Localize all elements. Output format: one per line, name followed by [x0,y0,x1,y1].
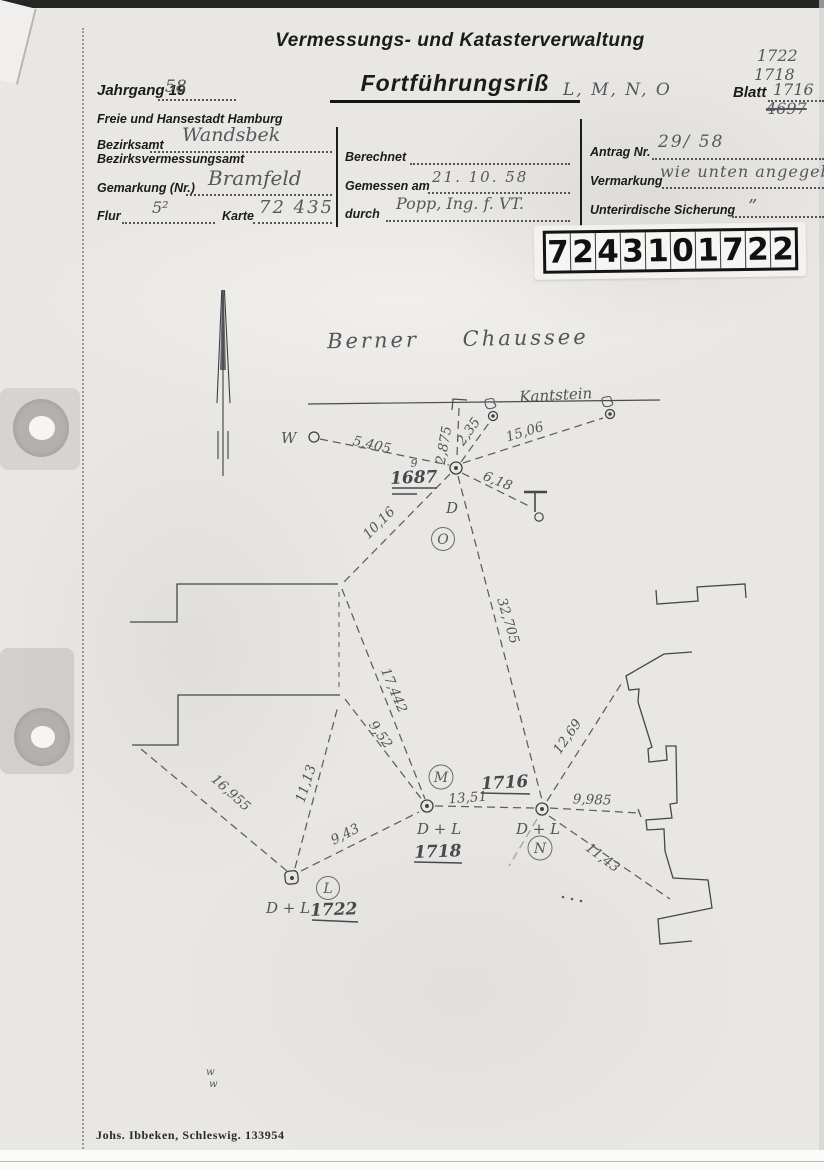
section-letter-m: M [433,770,449,786]
section-letter-n: N [533,841,547,857]
stamp-digit: 2 [746,231,772,268]
gemarkung-dotline [186,194,332,196]
measurement-label: 9,43 [328,820,362,848]
marker-code-l: D + L [265,899,310,917]
sicherung-label: Unterirdische Sicherung [590,203,735,217]
sicherung-value: ” [748,196,757,217]
blatt-crossed-value: 4697 [766,99,807,118]
jahrgang-value: 58 [165,77,187,97]
form-divider [580,119,582,229]
scanned-form-page: Vermessungs- und Katasterverwaltung Fort… [0,0,824,1169]
page-corner-fold [0,0,37,85]
pipe-symbol [524,492,547,521]
stamped-number: 7 2 4 3 1 0 1 7 2 2 [543,227,799,274]
measurement-label: 32,705 [493,596,522,646]
gemarkung-value: Bramfeld [208,166,302,190]
document-title: Fortführungsriß [330,70,580,103]
stamp-digit: 2 [771,230,796,267]
north-arrow-icon [217,290,230,476]
stamp-digit: 0 [671,232,697,269]
agency-title: Vermessungs- und Katasterverwaltung [160,30,760,52]
marker-code-m: D + L [416,820,461,838]
measurement-label: 9,985 [573,791,612,808]
stray-pencil-marks: w w [206,1067,218,1090]
antrag-value: 29/ 58 [658,132,724,152]
flur-value: 5² [152,198,169,217]
street-name: Berner Chaussee [326,325,589,354]
vermarkung-value: wie unten angegeben [660,162,824,181]
flur-dotline [122,222,215,224]
survey-sketch: O M N L Berner Chaussee Kantstein W D 16… [0,290,824,1169]
measurement-label: 9,52 [365,718,395,752]
title-sections-annotation: L, M, N, O [563,80,672,100]
measurement-label: 2,35 [453,415,484,450]
curb-label: Kantstein [518,384,593,406]
point-number-1716: 1716 [481,772,529,794]
point-number-1687: 1687 [390,467,438,489]
scan-bottom-line [0,1161,824,1162]
point-c [309,432,319,442]
measurement-label: 5,405 [351,433,392,457]
pencil-dots [562,896,583,903]
measurement-label: 15,06 [504,419,546,446]
durch-value: Popp, Ing. f. VT. [396,194,524,213]
stamp-digit: 4 [596,233,622,270]
point-letter-d: D [445,499,458,517]
antrag-dotline [652,158,824,160]
building-outlines [130,584,746,944]
point-number-1718: 1718 [414,841,462,863]
measurement-label: 11,43 [582,840,623,876]
line-end-ticks [638,809,641,817]
stamp-digit: 2 [571,233,597,270]
blatt-label: Blatt [733,84,766,101]
stamp-digit: 7 [721,231,747,268]
measurement-label: 16,955 [208,771,254,815]
svg-text:w: w [206,1067,215,1078]
point-number-correction: 9 [411,457,418,470]
bezirksamt-value: Wandsbek [182,124,280,146]
blatt-value: 1716 [773,80,814,99]
section-letter-o: O [437,532,449,548]
bezirksvermessungsamt-label: Bezirksvermessungsamt [97,152,244,166]
measurement-label: 11,13 [293,763,320,805]
vermarkung-label: Vermarkung [590,174,662,188]
sicherung-dotline [732,216,824,218]
blatt-stacked-1: 1722 [757,46,798,65]
berechnet-dotline [410,163,570,165]
measurement-label: 10,16 [360,504,399,543]
karte-value: 72 435 [259,197,334,218]
stamp-digit: 1 [696,231,722,268]
gemessen-value: 21. 10. 58 [432,168,528,186]
antrag-label: Antrag Nr. [590,145,650,159]
vermarkung-dotline [662,187,824,189]
point-number-1722: 1722 [310,899,358,921]
bezirksamt-label: Bezirksamt [97,138,164,152]
printer-note: Johs. Ibbeken, Schleswig. 133954 [96,1128,285,1143]
scan-bottom-edge [0,1150,824,1169]
karte-dotline [253,222,332,224]
karte-label: Karte [222,209,254,223]
svg-text:w: w [209,1079,218,1090]
marker-code-n: D + L [515,820,560,838]
scan-top-edge [0,0,824,8]
measurement-label: 12,69 [550,716,586,757]
berechnet-label: Berechnet [345,150,406,164]
flur-label: Flur [97,209,121,223]
stamp-digit: 7 [546,233,572,270]
survey-points [284,410,614,885]
durch-dotline [386,220,570,222]
durch-label: durch [345,207,380,221]
form-divider [336,127,338,227]
jahrgang-dotline [158,99,236,101]
section-letter-l: L [322,881,332,897]
measurement-label: 2,875 [433,425,456,467]
stamp-digit: 1 [646,232,672,269]
stamp-digit: 3 [621,232,647,269]
gemarkung-label: Gemarkung (Nr.) [97,181,195,195]
west-label: W [281,429,298,447]
street-line [308,399,660,410]
measurement-label: 13,51 [448,789,488,808]
gemessen-label: Gemessen am [345,179,430,193]
